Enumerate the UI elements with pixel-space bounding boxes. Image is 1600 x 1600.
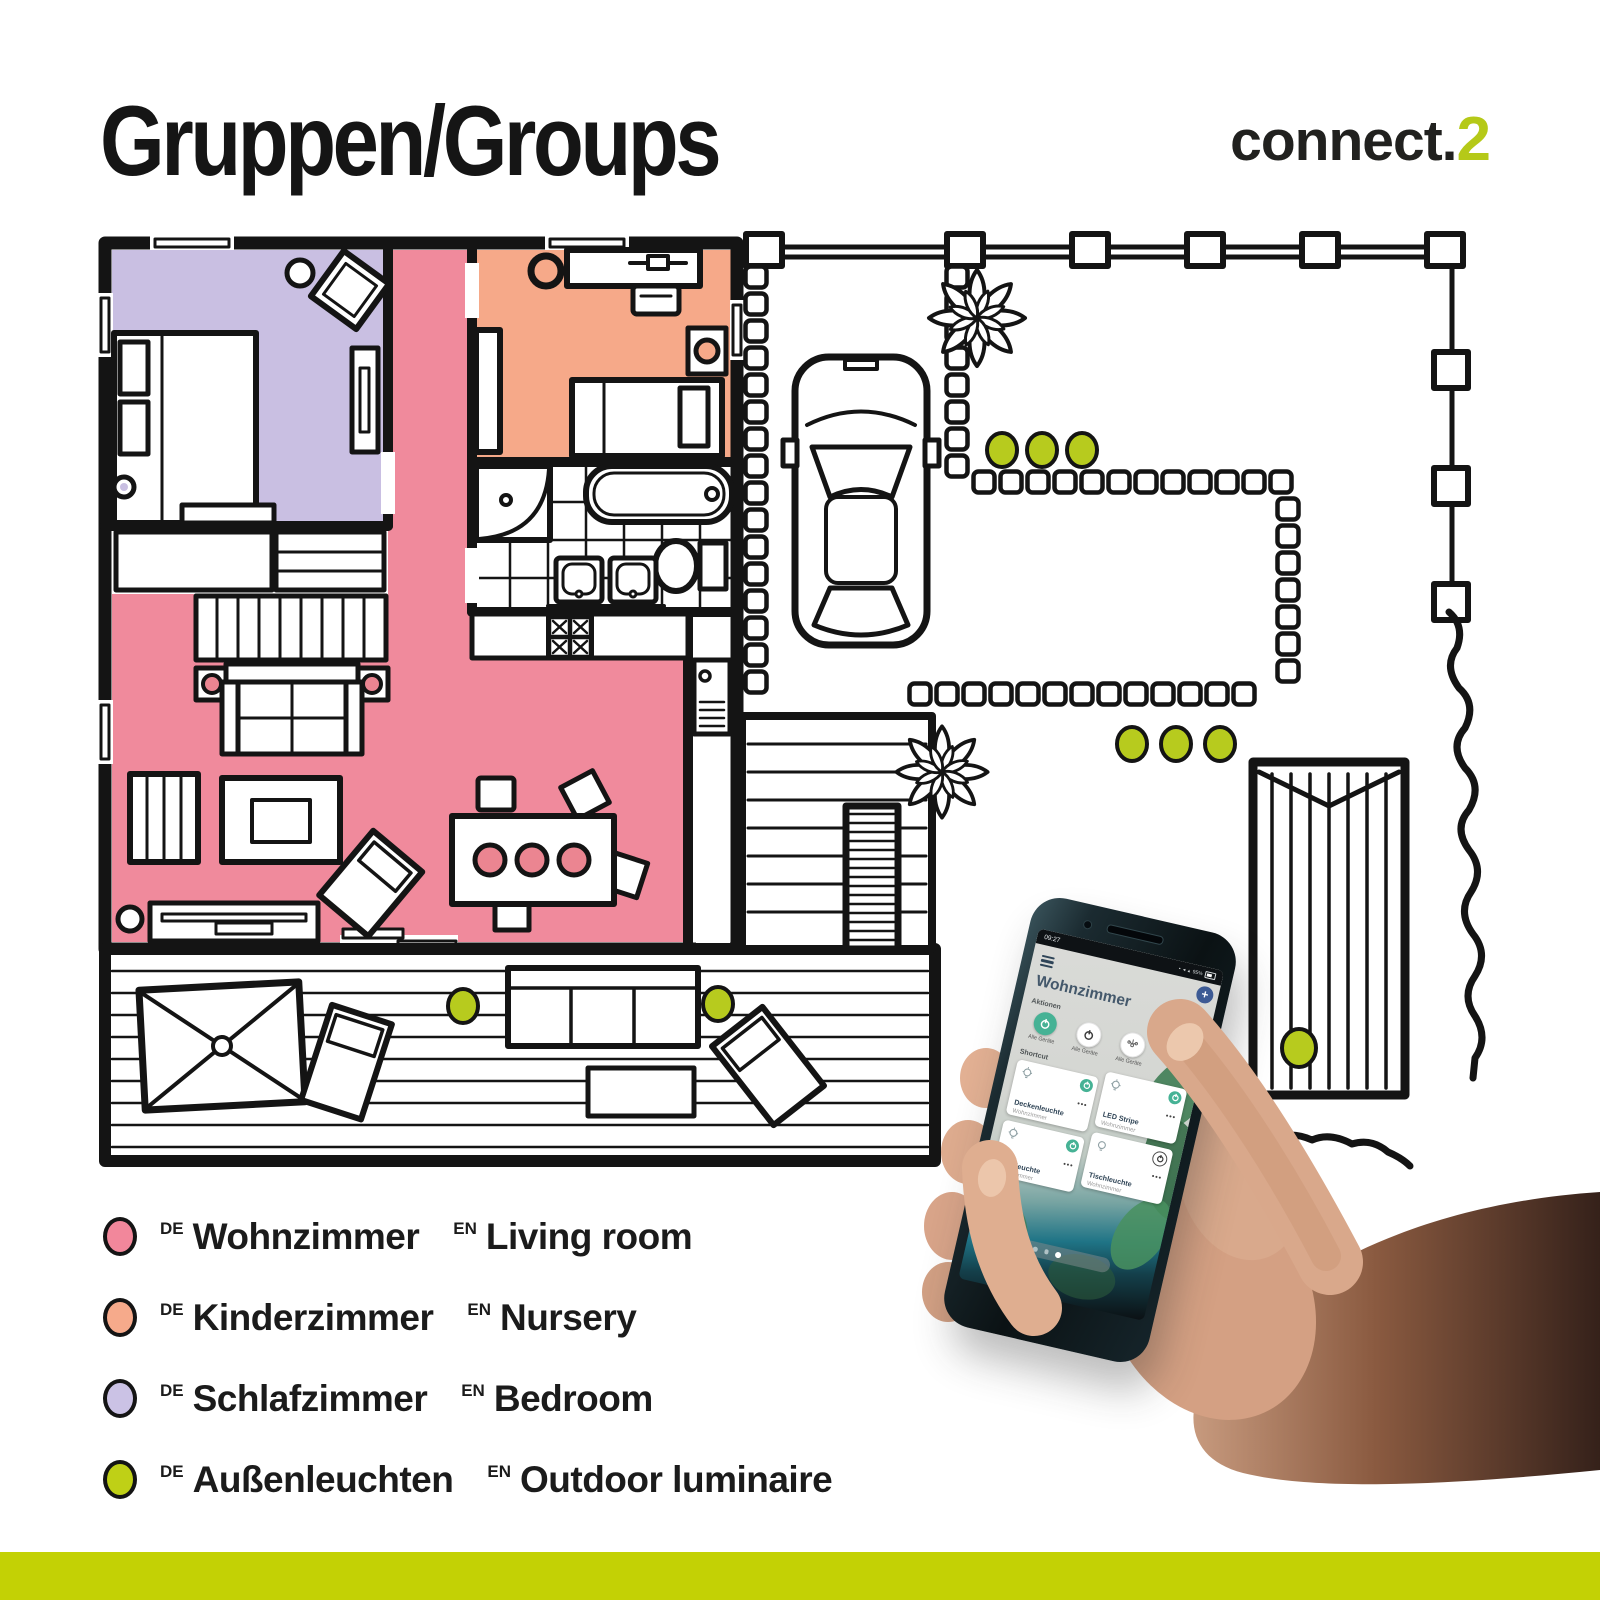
card-more-icon[interactable]: ••• — [1165, 1113, 1177, 1122]
device-card-tischleuchte[interactable]: Tischleuchte ••• Wohnzimmer — [1080, 1132, 1173, 1205]
logo-text: connect. — [1230, 109, 1456, 173]
mute-icon: ◂ — [1182, 966, 1186, 972]
legend-item-outdoor: DE Außenleuchten EN Outdoor luminaire — [103, 1453, 832, 1506]
legend: DE Wohnzimmer EN Living room DE Kinderzi… — [103, 1210, 832, 1506]
legend-swatch — [103, 1460, 137, 1499]
brand-logo: connect.2 — [1230, 104, 1490, 175]
page-title: Gruppen/Groups — [100, 84, 718, 198]
home-icon[interactable] — [1014, 1239, 1027, 1252]
battery-icon — [1204, 971, 1216, 980]
legend-swatch — [103, 1379, 137, 1418]
signal-icon: ▴ — [1187, 968, 1191, 974]
page-dot[interactable] — [1044, 1249, 1049, 1254]
legend-item-bedroom: DE Schlafzimmer EN Bedroom — [103, 1372, 832, 1425]
device-card-led-stripe[interactable]: LED Stripe ••• Wohnzimmer — [1094, 1071, 1187, 1144]
power-toggle[interactable] — [1167, 1090, 1183, 1106]
bulb-icon — [1094, 1138, 1109, 1154]
footer-accent-bar — [0, 1552, 1600, 1600]
clock: 09:27 — [1043, 934, 1060, 944]
page-dot-active[interactable] — [1055, 1251, 1062, 1258]
notification-icon: ▪ — [1178, 965, 1181, 971]
menu-icon[interactable] — [1040, 955, 1055, 969]
action-all-devices-on[interactable]: Alle Geräte — [1022, 1008, 1065, 1048]
device-grid: Deckenleuchte ••• Wohnzimmer LED Stripe … — [992, 1059, 1186, 1213]
bulb-icon — [1020, 1065, 1035, 1081]
bulb-icon — [1006, 1126, 1021, 1142]
legend-item-nursery: DE Kinderzimmer EN Nursery — [103, 1291, 832, 1344]
legend-swatch — [103, 1217, 137, 1256]
chandelier-icon[interactable] — [1117, 1030, 1147, 1060]
bulb-icon — [1108, 1077, 1123, 1093]
legend-item-living-room: DE Wohnzimmer EN Living room — [103, 1210, 832, 1263]
card-more-icon[interactable]: ••• — [1151, 1173, 1163, 1182]
device-card-stehleuchte[interactable]: Stehleuchte ••• Wohnzimmer — [992, 1119, 1085, 1192]
action-all-lamps[interactable]: Alle Geräte — [1110, 1029, 1153, 1069]
logo-z: 2 — [1457, 105, 1490, 174]
power-icon[interactable] — [1031, 1010, 1059, 1038]
legend-swatch — [103, 1298, 137, 1337]
phone-camera — [1082, 919, 1093, 930]
page-dot[interactable] — [1032, 1246, 1037, 1251]
phone-speaker — [1106, 924, 1165, 946]
battery-percent: 95% — [1192, 969, 1203, 977]
action-all-devices-off[interactable]: Alle Geräte — [1066, 1018, 1109, 1058]
power-toggle[interactable] — [1079, 1078, 1095, 1094]
card-more-icon[interactable]: ••• — [1062, 1161, 1074, 1170]
power-icon[interactable] — [1073, 1020, 1103, 1050]
card-more-icon[interactable]: ••• — [1076, 1100, 1088, 1109]
power-toggle[interactable] — [1151, 1150, 1169, 1168]
power-toggle[interactable] — [1065, 1138, 1081, 1154]
